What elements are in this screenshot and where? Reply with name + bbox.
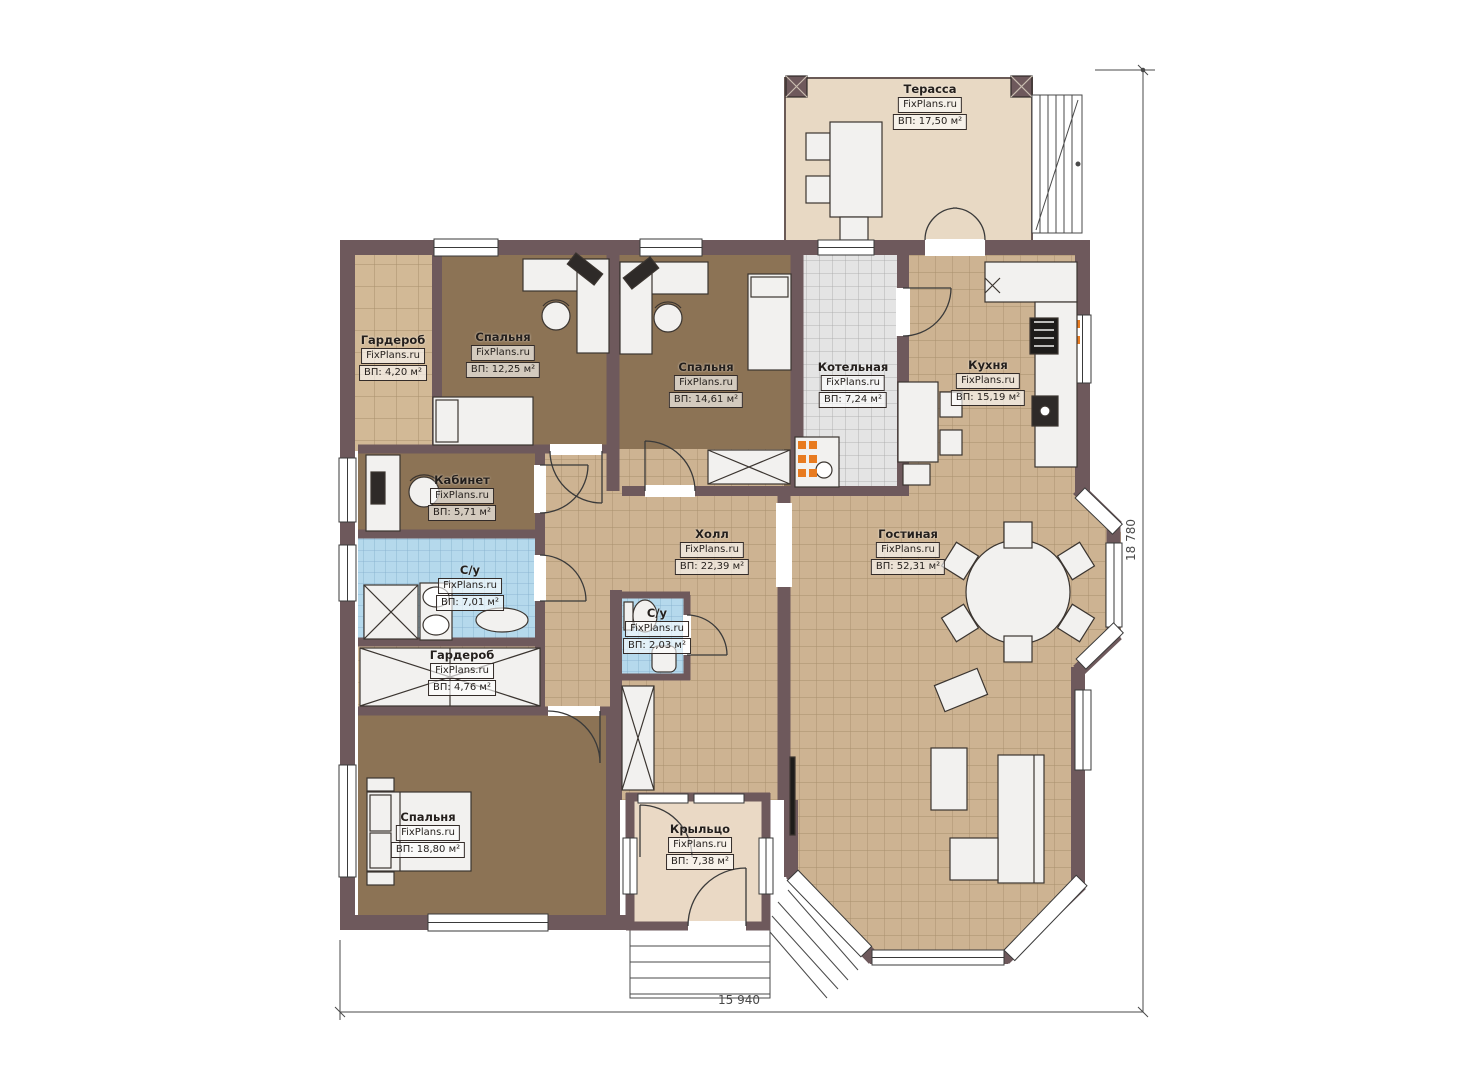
dimension-height: 18 780: [1124, 519, 1138, 561]
floor-plan-page: Терасса FixPlans.ru ВП: 17,50 м² Гардеро…: [0, 0, 1473, 1080]
floor-plan-canvas: [0, 0, 1473, 1080]
dimension-width: 15 940: [718, 993, 760, 1007]
